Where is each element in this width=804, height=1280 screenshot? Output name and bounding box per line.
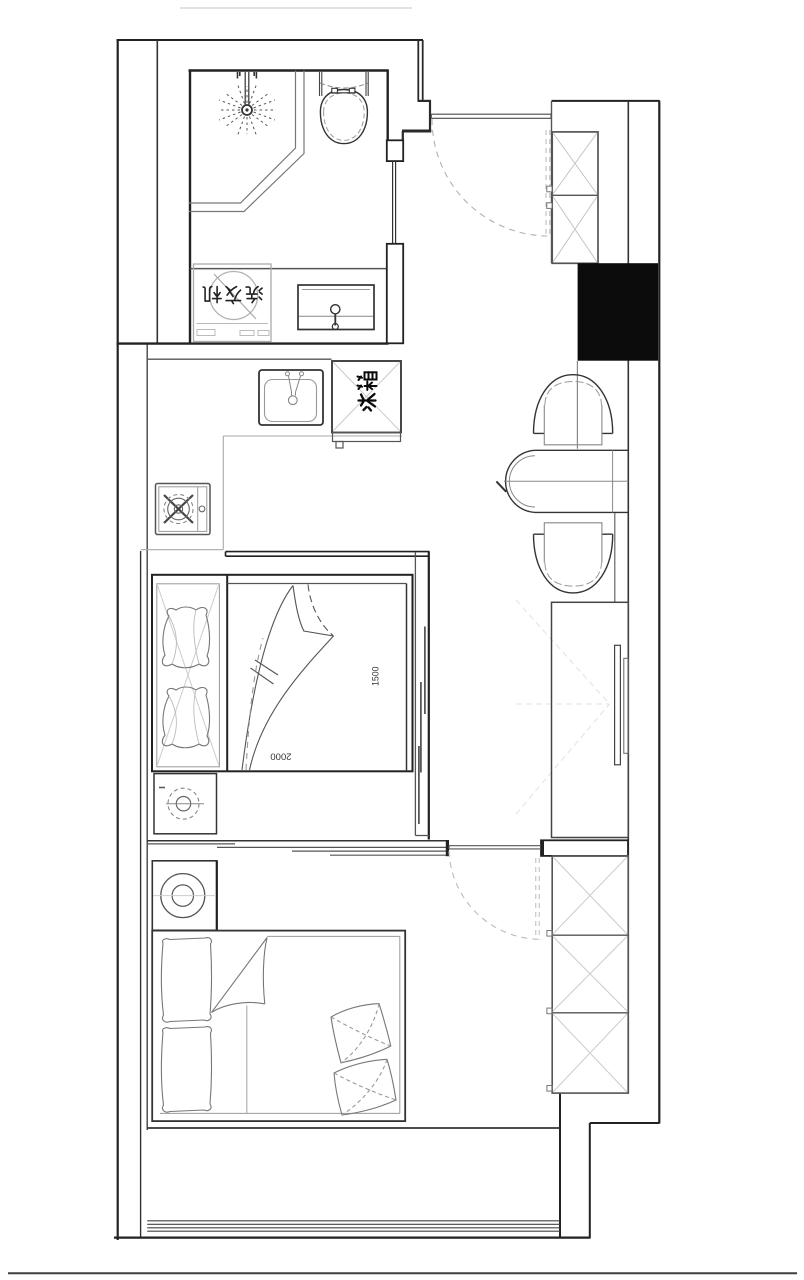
svg-text:2000: 2000 xyxy=(270,751,291,762)
svg-text:1500: 1500 xyxy=(371,666,381,686)
